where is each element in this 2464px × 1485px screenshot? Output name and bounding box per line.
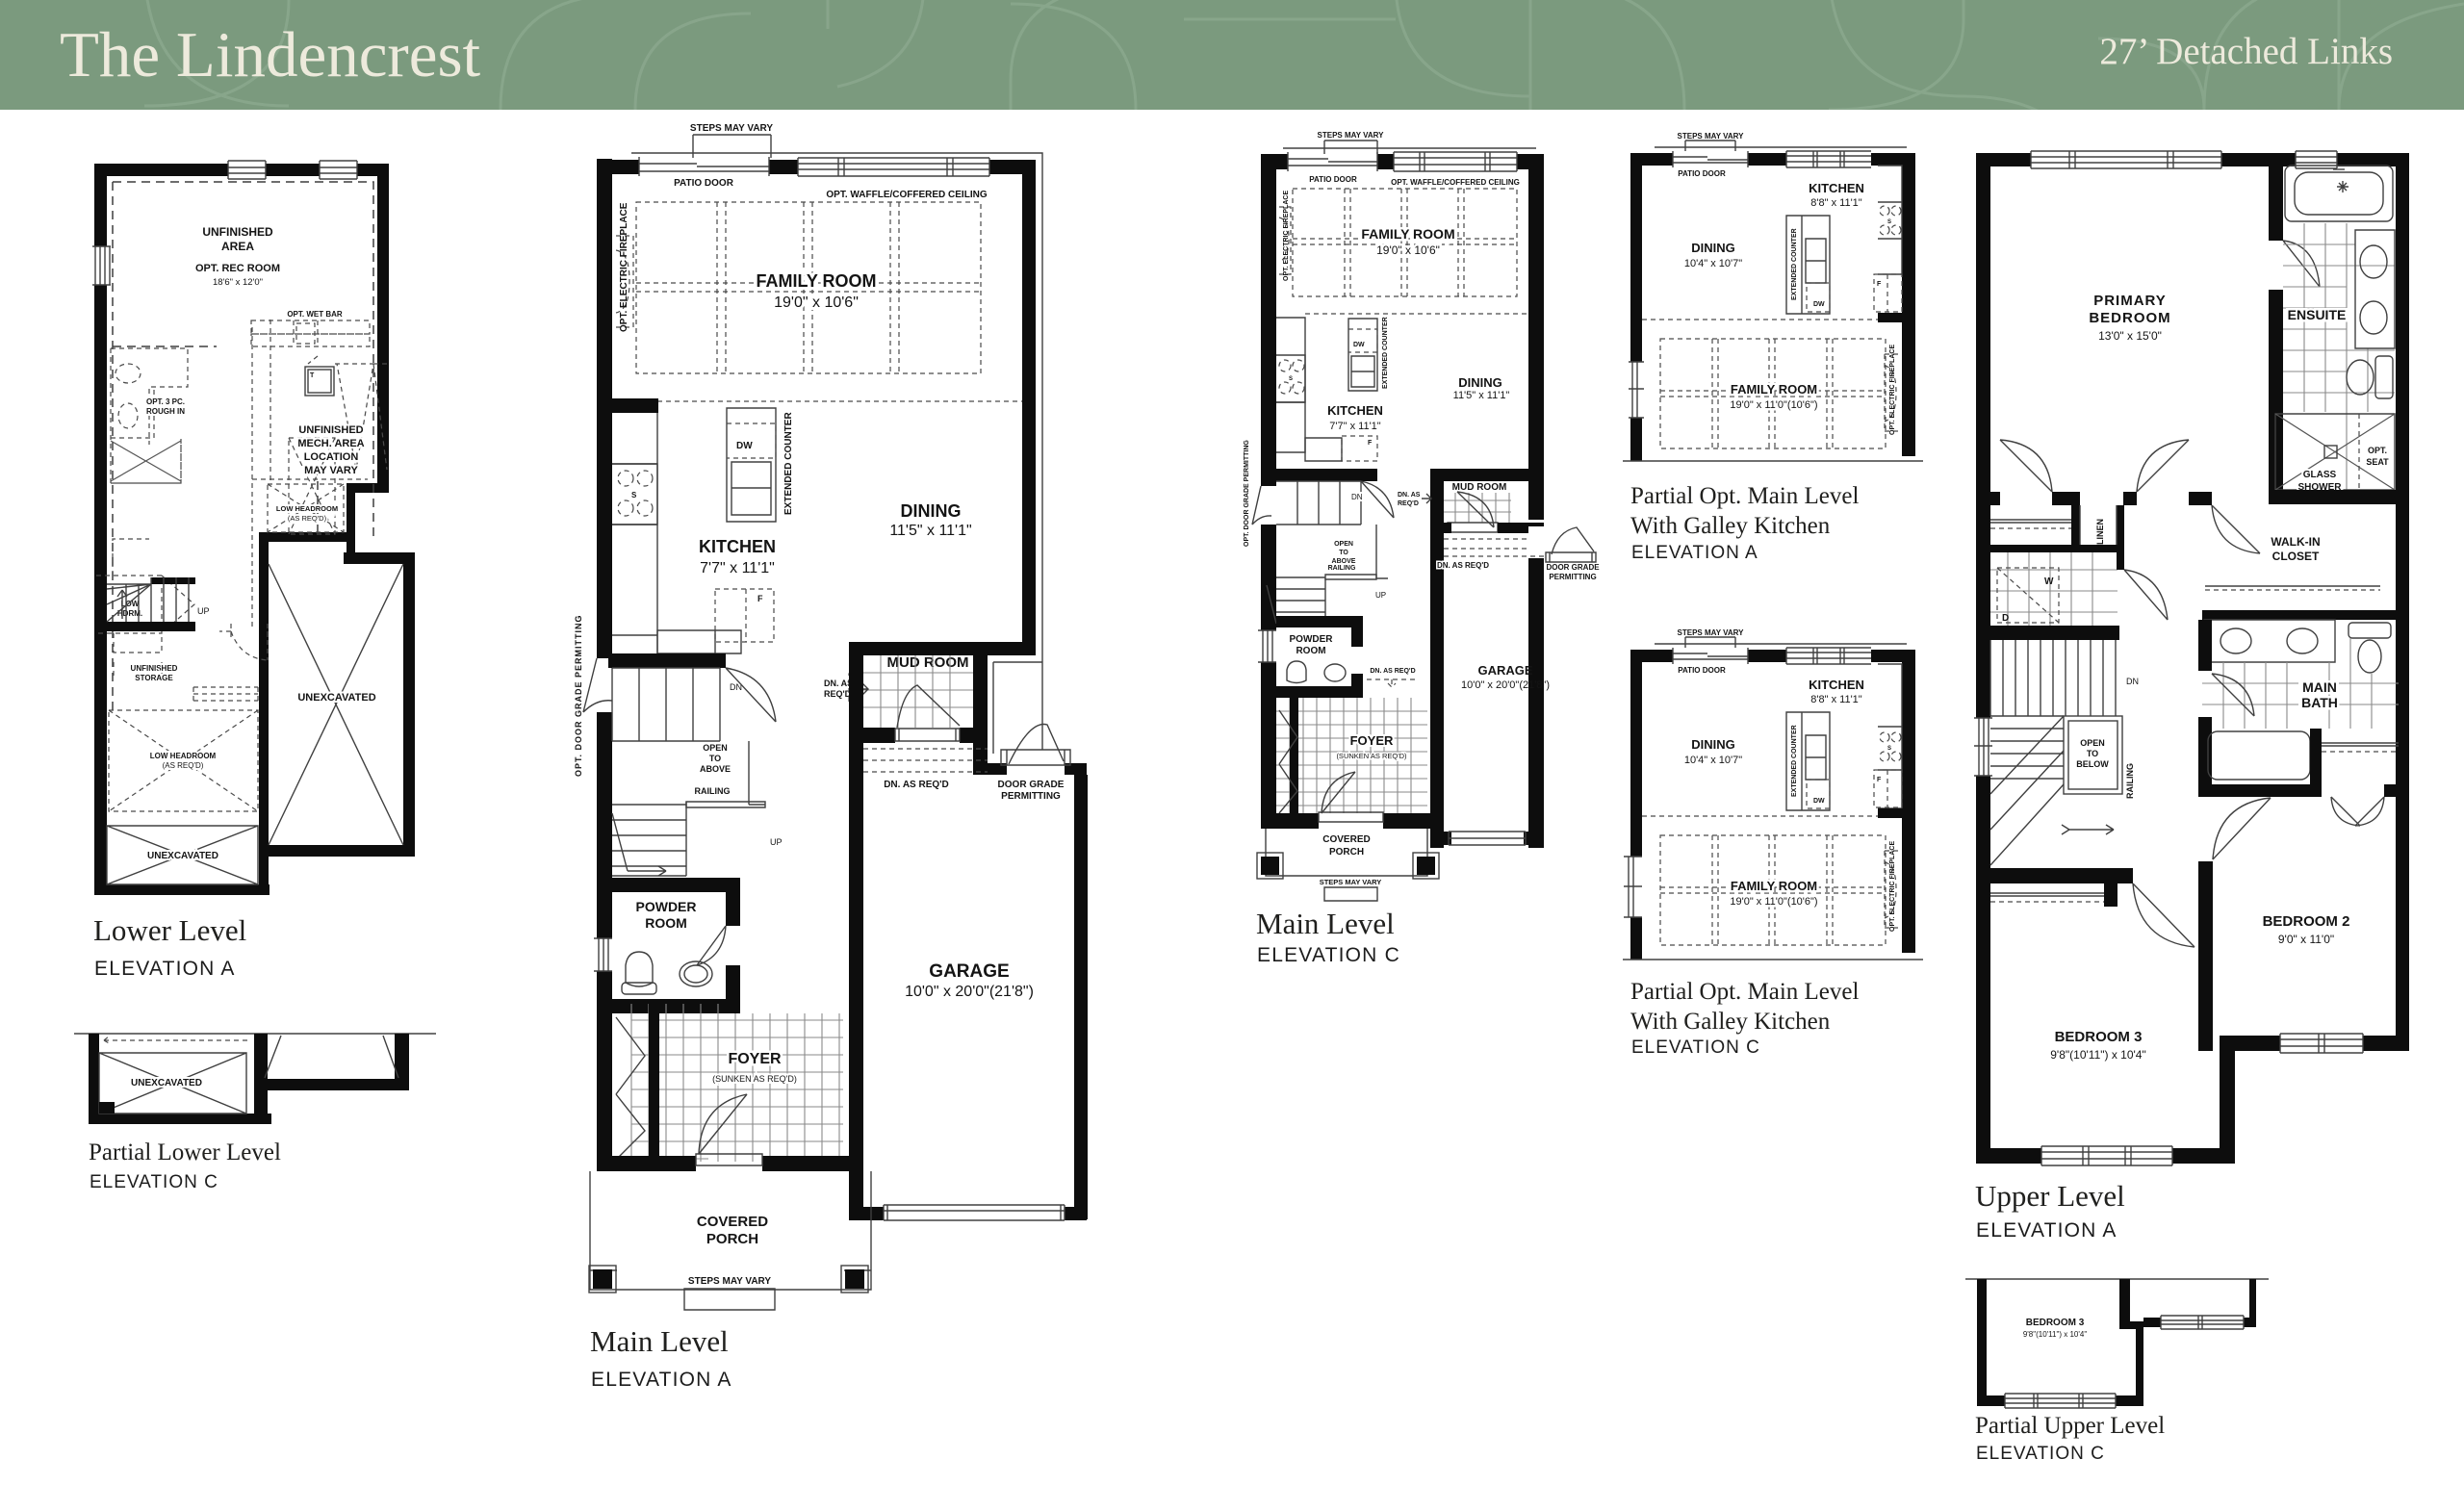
svg-text:PORCH: PORCH (706, 1231, 758, 1247)
svg-text:FOYER: FOYER (728, 1051, 782, 1067)
svg-text:STEPS MAY VARY: STEPS MAY VARY (1320, 878, 1382, 886)
svg-text:STEPS MAY VARY: STEPS MAY VARY (1318, 131, 1385, 140)
svg-text:PRIMARY: PRIMARY (2093, 293, 2167, 309)
svg-text:DINING: DINING (1691, 241, 1735, 255)
svg-text:S: S (1289, 376, 1293, 382)
svg-text:PATIO DOOR: PATIO DOOR (1309, 175, 1357, 184)
svg-text:BATH: BATH (2301, 695, 2338, 710)
svg-text:PATIO DOOR: PATIO DOOR (1678, 666, 1726, 675)
svg-text:UP: UP (197, 606, 210, 616)
svg-text:FAMILY ROOM: FAMILY ROOM (756, 271, 876, 291)
svg-text:PATIO DOOR: PATIO DOOR (674, 178, 734, 189)
svg-text:FAMILY ROOM: FAMILY ROOM (1731, 382, 1817, 397)
svg-text:WALK-IN: WALK-IN (2271, 535, 2320, 549)
svg-text:REQ'D: REQ'D (1398, 500, 1419, 507)
svg-text:STEPS MAY VARY: STEPS MAY VARY (688, 1276, 771, 1287)
svg-text:19'0" x 11'0"(10'6"): 19'0" x 11'0"(10'6") (1730, 399, 1817, 411)
svg-text:BEDROOM: BEDROOM (2089, 310, 2170, 326)
svg-text:11'5" x 11'1": 11'5" x 11'1" (889, 523, 971, 539)
svg-text:EXTENDED COUNTER: EXTENDED COUNTER (1791, 228, 1798, 300)
svg-text:ABOVE: ABOVE (1332, 558, 1356, 565)
svg-text:D: D (2002, 613, 2009, 624)
svg-text:DOOR GRADE: DOOR GRADE (1546, 563, 1600, 572)
svg-text:OPT. ELECTRIC FIREPLACE: OPT. ELECTRIC FIREPLACE (619, 202, 629, 332)
svg-text:MAIN: MAIN (2302, 679, 2337, 695)
svg-text:ELEVATION C: ELEVATION C (1976, 1444, 2105, 1464)
svg-text:ELEVATION C: ELEVATION C (1257, 944, 1400, 966)
svg-text:OPT. ELECTRIC FIREPLACE: OPT. ELECTRIC FIREPLACE (1889, 841, 1896, 932)
svg-text:With Galley Kitchen: With Galley Kitchen (1630, 513, 1831, 539)
svg-text:GARAGE: GARAGE (1477, 663, 1532, 678)
svg-text:DW: DW (1813, 301, 1825, 308)
svg-text:OPT. REC ROOM: OPT. REC ROOM (195, 263, 280, 274)
svg-text:FAMILY ROOM: FAMILY ROOM (1731, 879, 1817, 893)
svg-text:STEPS MAY VARY: STEPS MAY VARY (1678, 132, 1745, 141)
svg-text:GLASS: GLASS (2303, 470, 2337, 480)
svg-text:POWDER: POWDER (1290, 634, 1334, 645)
svg-text:BEDROOM 3: BEDROOM 3 (2026, 1318, 2085, 1328)
svg-text:DN. AS: DN. AS (1398, 492, 1421, 499)
svg-text:19'0" x 11'0"(10'6"): 19'0" x 11'0"(10'6") (1730, 896, 1817, 908)
svg-text:ENSUITE: ENSUITE (2288, 307, 2347, 322)
svg-text:TO: TO (709, 754, 721, 763)
svg-text:TO: TO (1339, 550, 1348, 556)
svg-text:OPT. WAFFLE/COFFERED CEILING: OPT. WAFFLE/COFFERED CEILING (826, 190, 987, 200)
svg-text:PERMITTING: PERMITTING (1001, 791, 1061, 802)
svg-text:TO: TO (2087, 749, 2098, 758)
svg-text:(AS REQ'D): (AS REQ'D) (163, 761, 204, 770)
svg-text:COVERED: COVERED (697, 1214, 768, 1230)
svg-text:10'4" x 10'7": 10'4" x 10'7" (1684, 258, 1742, 269)
svg-text:DN. AS REQ'D: DN. AS REQ'D (884, 780, 949, 790)
svg-text:MUD ROOM: MUD ROOM (887, 654, 969, 671)
svg-text:BEDROOM 2: BEDROOM 2 (2263, 913, 2350, 930)
svg-text:10'0" x 20'0"(21'8"): 10'0" x 20'0"(21'8") (1461, 679, 1550, 691)
svg-text:UNEXCAVATED: UNEXCAVATED (297, 692, 375, 704)
svg-text:(SUNKEN AS REQ'D): (SUNKEN AS REQ'D) (1336, 752, 1407, 760)
svg-text:EXTENDED COUNTER: EXTENDED COUNTER (783, 412, 794, 515)
svg-text:T: T (310, 372, 315, 379)
svg-text:Main Level: Main Level (1256, 907, 1395, 940)
svg-text:Partial Upper Level: Partial Upper Level (1975, 1413, 2165, 1439)
svg-text:DN. AS REQ'D: DN. AS REQ'D (1370, 668, 1415, 675)
svg-text:ROOM: ROOM (1296, 646, 1325, 656)
svg-text:UP: UP (770, 837, 783, 847)
svg-text:DW: DW (1353, 342, 1365, 348)
svg-text:BELOW: BELOW (2076, 759, 2109, 769)
svg-text:GARAGE: GARAGE (929, 961, 1009, 982)
svg-text:18'6" x 12'0": 18'6" x 12'0" (213, 277, 263, 288)
svg-text:OPEN: OPEN (2080, 738, 2105, 748)
svg-text:REQ'D: REQ'D (824, 689, 852, 699)
svg-text:MAY VARY: MAY VARY (304, 465, 358, 476)
svg-text:OPT. ELECTRIC FIREPLACE: OPT. ELECTRIC FIREPLACE (1283, 191, 1290, 281)
svg-text:8'8" x 11'1": 8'8" x 11'1" (1810, 197, 1861, 209)
svg-text:LINEN: LINEN (2095, 519, 2105, 545)
svg-text:Upper Level: Upper Level (1975, 1179, 2125, 1213)
svg-text:W: W (2044, 576, 2054, 587)
svg-text:DW: DW (736, 441, 753, 451)
svg-text:DN. AS REQ'D: DN. AS REQ'D (1437, 561, 1489, 570)
svg-text:Partial Opt. Main Level: Partial Opt. Main Level (1630, 979, 1859, 1005)
svg-text:ELEVATION A: ELEVATION A (591, 1369, 732, 1391)
svg-text:(AS REQ'D): (AS REQ'D) (288, 514, 327, 523)
svg-text:KITCHEN: KITCHEN (1809, 181, 1864, 195)
svg-text:Main Level: Main Level (590, 1324, 729, 1358)
svg-text:UNEXCAVATED: UNEXCAVATED (147, 851, 218, 861)
svg-text:ROUGH IN: ROUGH IN (146, 407, 185, 416)
svg-text:DINING: DINING (1458, 375, 1502, 390)
svg-text:DINING: DINING (901, 501, 962, 521)
svg-text:9'8"(10'11") x 10'4": 9'8"(10'11") x 10'4" (2050, 1048, 2146, 1062)
svg-text:The Lindencrest: The Lindencrest (60, 19, 481, 90)
svg-text:F: F (757, 594, 763, 603)
svg-text:19'0" x 10'6": 19'0" x 10'6" (1376, 243, 1440, 257)
svg-text:F: F (1877, 777, 1882, 783)
svg-text:RAILING: RAILING (695, 786, 731, 796)
svg-text:KITCHEN: KITCHEN (1809, 678, 1864, 692)
svg-text:UP: UP (1375, 591, 1386, 600)
svg-text:OPT.: OPT. (2368, 446, 2387, 455)
svg-text:ELEVATION A: ELEVATION A (1631, 543, 1758, 563)
svg-text:PATIO DOOR: PATIO DOOR (1678, 169, 1726, 178)
svg-text:7'7" x 11'1": 7'7" x 11'1" (700, 560, 775, 576)
svg-text:OPT. ELECTRIC FIREPLACE: OPT. ELECTRIC FIREPLACE (1889, 345, 1896, 435)
svg-text:ABOVE: ABOVE (700, 764, 731, 774)
svg-text:COVERED: COVERED (1322, 834, 1370, 845)
svg-text:UNFINISHED: UNFINISHED (298, 424, 363, 436)
svg-text:7'7" x 11'1": 7'7" x 11'1" (1329, 421, 1380, 432)
svg-text:DN: DN (2126, 677, 2139, 686)
svg-text:OPEN: OPEN (703, 743, 728, 753)
svg-text:F: F (1877, 281, 1882, 288)
svg-text:10'0" x 20'0"(21'8"): 10'0" x 20'0"(21'8") (905, 984, 1034, 1000)
svg-text:SEAT: SEAT (2366, 457, 2389, 467)
svg-text:RAILING: RAILING (2125, 763, 2135, 799)
svg-text:EXTENDED COUNTER: EXTENDED COUNTER (1382, 317, 1389, 389)
svg-text:OPEN: OPEN (1334, 541, 1353, 548)
svg-text:UNFINISHED: UNFINISHED (202, 225, 273, 239)
svg-text:ROOM: ROOM (645, 915, 687, 931)
svg-text:Lower Level: Lower Level (93, 913, 246, 947)
svg-text:ELEVATION C: ELEVATION C (90, 1172, 218, 1192)
svg-text:BEDROOM 3: BEDROOM 3 (2055, 1029, 2143, 1045)
svg-text:AREA: AREA (221, 240, 254, 253)
svg-text:19'0" x 10'6": 19'0" x 10'6" (774, 294, 859, 311)
svg-text:(SUNKEN AS REQ'D): (SUNKEN AS REQ'D) (712, 1074, 797, 1084)
svg-text:10'4" x 10'7": 10'4" x 10'7" (1684, 755, 1742, 766)
svg-text:RAILING: RAILING (1328, 565, 1356, 572)
svg-text:11'5" x 11'1": 11'5" x 11'1" (1453, 390, 1510, 401)
svg-text:Partial Lower Level: Partial Lower Level (89, 1139, 281, 1165)
svg-text:S: S (1887, 219, 1891, 225)
svg-text:STEPS MAY VARY: STEPS MAY VARY (690, 123, 773, 134)
svg-text:With Galley Kitchen: With Galley Kitchen (1630, 1009, 1831, 1035)
svg-text:ELEVATION A: ELEVATION A (94, 958, 236, 980)
svg-text:LOCATION: LOCATION (304, 451, 359, 463)
svg-text:OPT. 3 PC.: OPT. 3 PC. (146, 397, 185, 406)
svg-text:8'8" x 11'1": 8'8" x 11'1" (1810, 694, 1861, 705)
svg-text:DN: DN (1351, 493, 1363, 501)
svg-text:STORAGE: STORAGE (135, 674, 173, 682)
svg-text:KITCHEN: KITCHEN (699, 537, 776, 556)
svg-text:9'8"(10'11") x 10'4": 9'8"(10'11") x 10'4" (2023, 1330, 2087, 1339)
svg-text:PERMITTING: PERMITTING (1549, 573, 1596, 581)
svg-text:S: S (631, 491, 637, 499)
svg-text:MUD ROOM: MUD ROOM (1452, 482, 1507, 493)
svg-text:POWDER: POWDER (636, 899, 697, 914)
svg-text:Partial Opt. Main Level: Partial Opt. Main Level (1630, 483, 1859, 509)
svg-text:CLOSET: CLOSET (2272, 550, 2320, 563)
svg-text:OPT. DOOR GRADE PERMITTING: OPT. DOOR GRADE PERMITTING (574, 614, 583, 777)
svg-text:STEPS MAY VARY: STEPS MAY VARY (1678, 628, 1745, 637)
svg-text:OPT. DOOR GRADE PERMITTING: OPT. DOOR GRADE PERMITTING (1244, 440, 1250, 547)
svg-text:UNFINISHED: UNFINISHED (131, 664, 178, 673)
svg-text:ELEVATION C: ELEVATION C (1631, 1037, 1760, 1058)
svg-text:ELEVATION A: ELEVATION A (1976, 1219, 2117, 1242)
svg-text:F: F (1368, 440, 1373, 447)
svg-text:13'0" x 15'0": 13'0" x 15'0" (2098, 329, 2162, 343)
svg-text:LOW HEADROOM: LOW HEADROOM (150, 752, 217, 760)
svg-text:S: S (1887, 746, 1891, 752)
svg-text:DOOR GRADE: DOOR GRADE (998, 780, 1065, 790)
svg-text:DW: DW (1813, 798, 1825, 805)
svg-text:OPT. WET BAR: OPT. WET BAR (287, 310, 343, 319)
svg-text:DINING: DINING (1691, 737, 1735, 752)
svg-text:OPT. WAFFLE/COFFERED CEILING: OPT. WAFFLE/COFFERED CEILING (1391, 178, 1520, 187)
svg-text:EXTENDED COUNTER: EXTENDED COUNTER (1791, 725, 1798, 797)
svg-text:27’ Detached Links: 27’ Detached Links (2099, 31, 2393, 72)
svg-text:PORCH: PORCH (1329, 847, 1364, 858)
svg-text:KITCHEN: KITCHEN (1327, 403, 1383, 418)
svg-text:LOW HEADROOM: LOW HEADROOM (276, 504, 338, 513)
svg-text:9'0" x 11'0": 9'0" x 11'0" (2278, 933, 2334, 946)
svg-text:FAMILY ROOM: FAMILY ROOM (1361, 226, 1454, 242)
svg-text:FOYER: FOYER (1350, 733, 1394, 748)
svg-text:MECH. AREA: MECH. AREA (297, 438, 364, 449)
svg-text:UNEXCAVATED: UNEXCAVATED (131, 1078, 202, 1088)
